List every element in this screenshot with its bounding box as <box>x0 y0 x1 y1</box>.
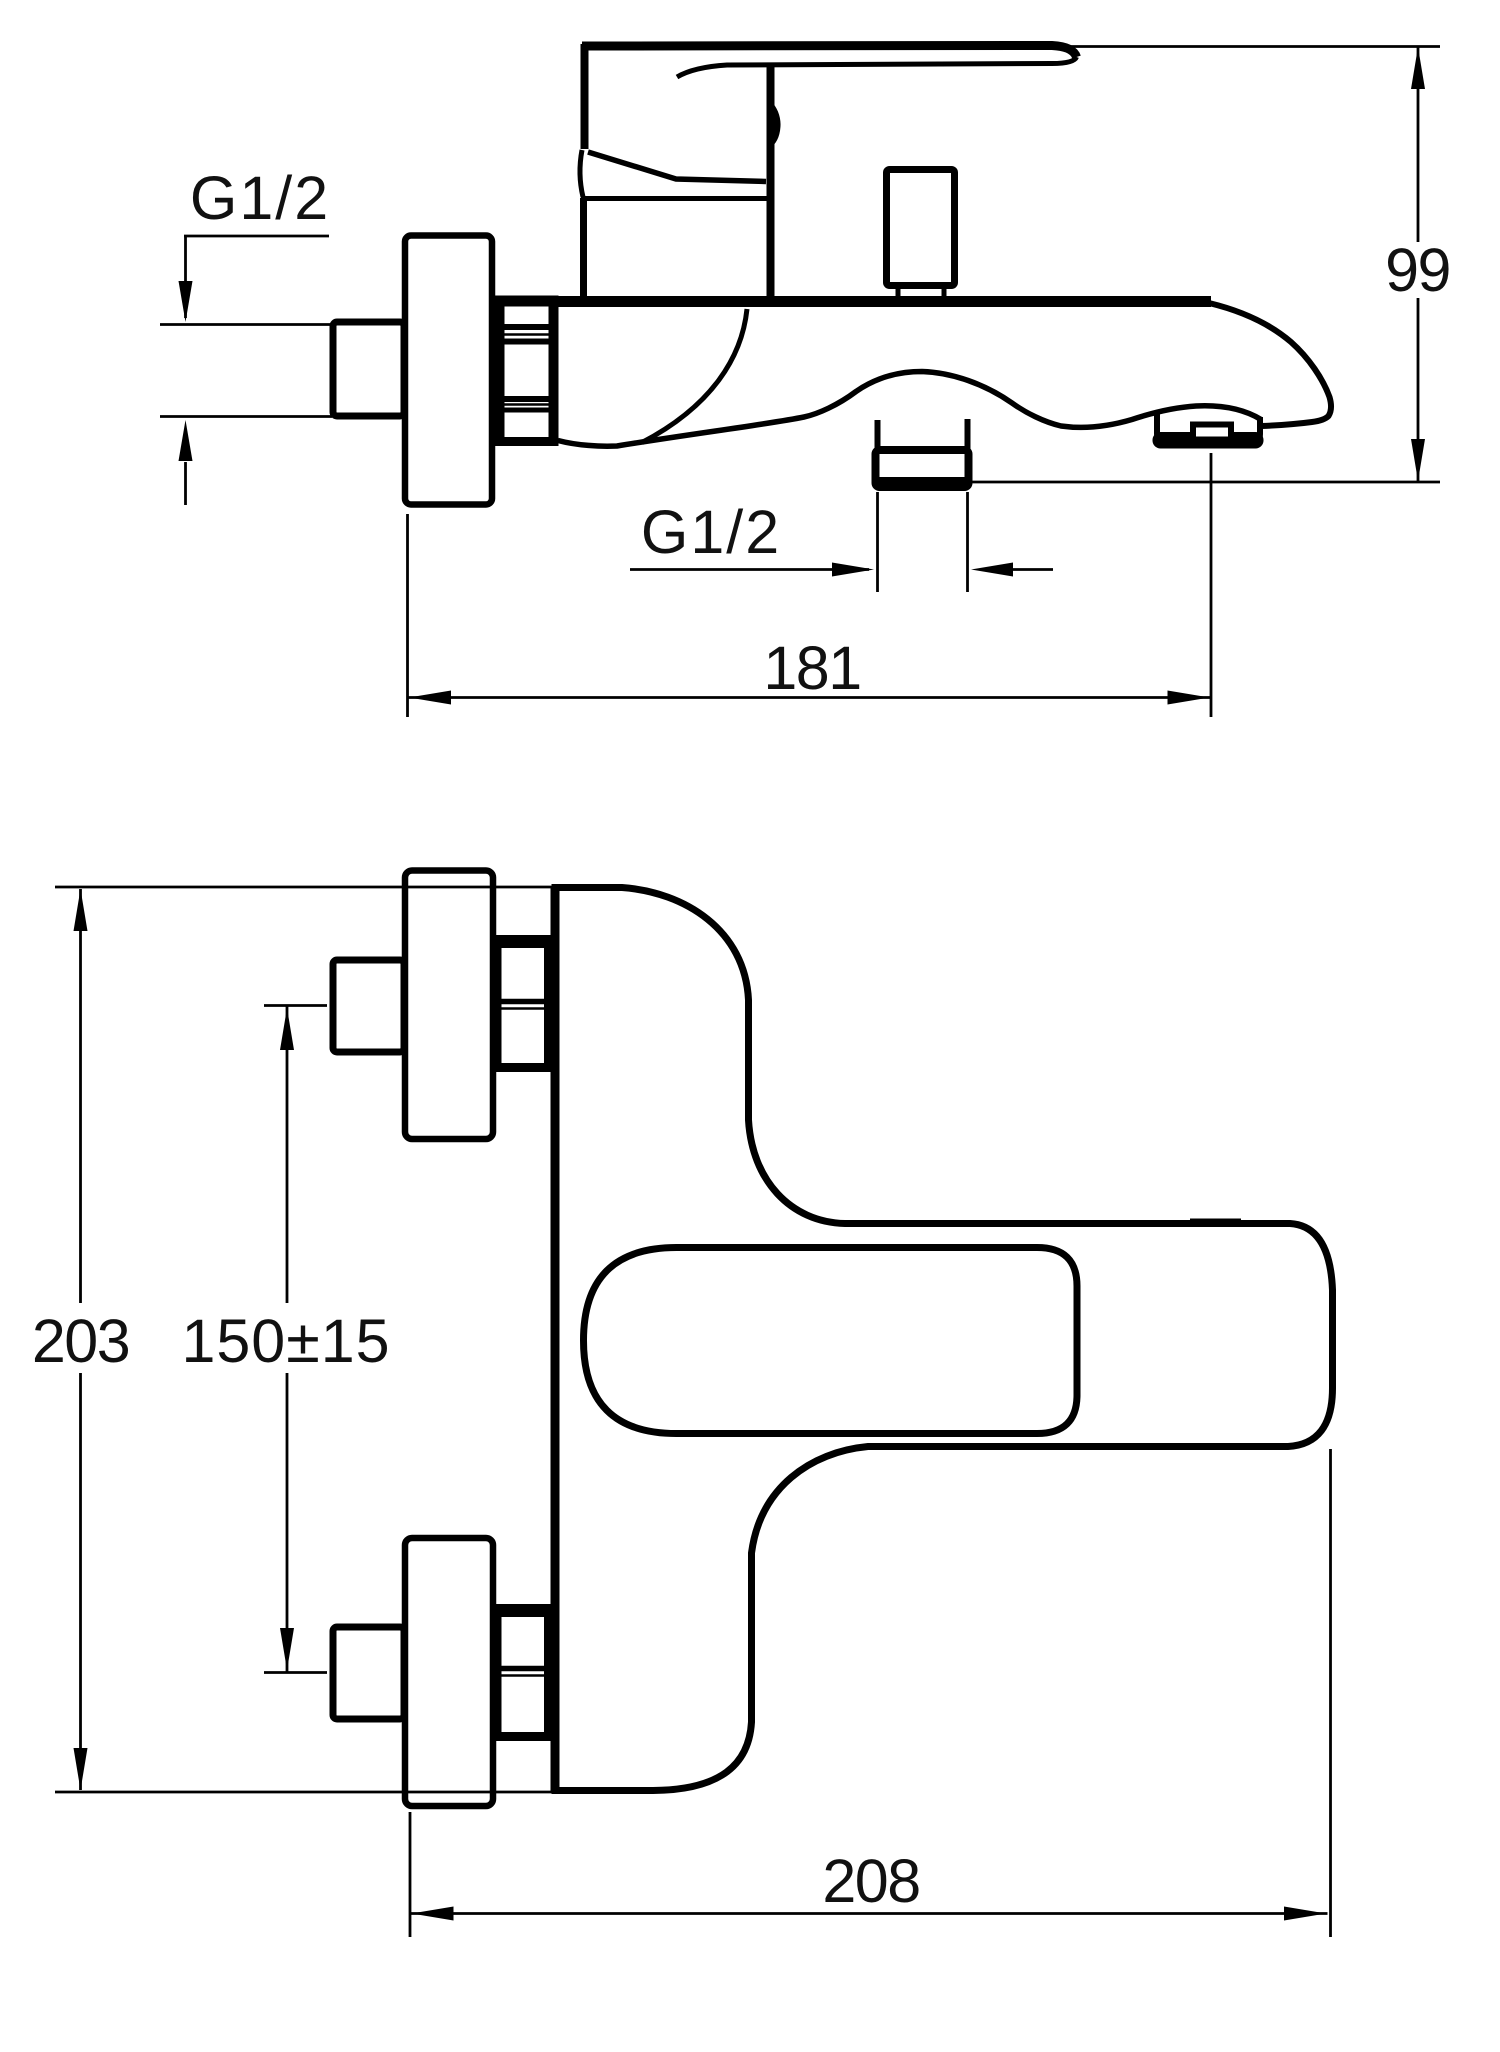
svg-text:G1/2: G1/2 <box>641 498 781 566</box>
svg-text:203: 203 <box>32 1307 129 1375</box>
svg-text:150±15: 150±15 <box>181 1307 390 1375</box>
svg-text:G1/2: G1/2 <box>190 164 330 232</box>
svg-text:208: 208 <box>822 1847 919 1915</box>
svg-text:99: 99 <box>1385 236 1450 304</box>
svg-text:181: 181 <box>763 634 860 702</box>
